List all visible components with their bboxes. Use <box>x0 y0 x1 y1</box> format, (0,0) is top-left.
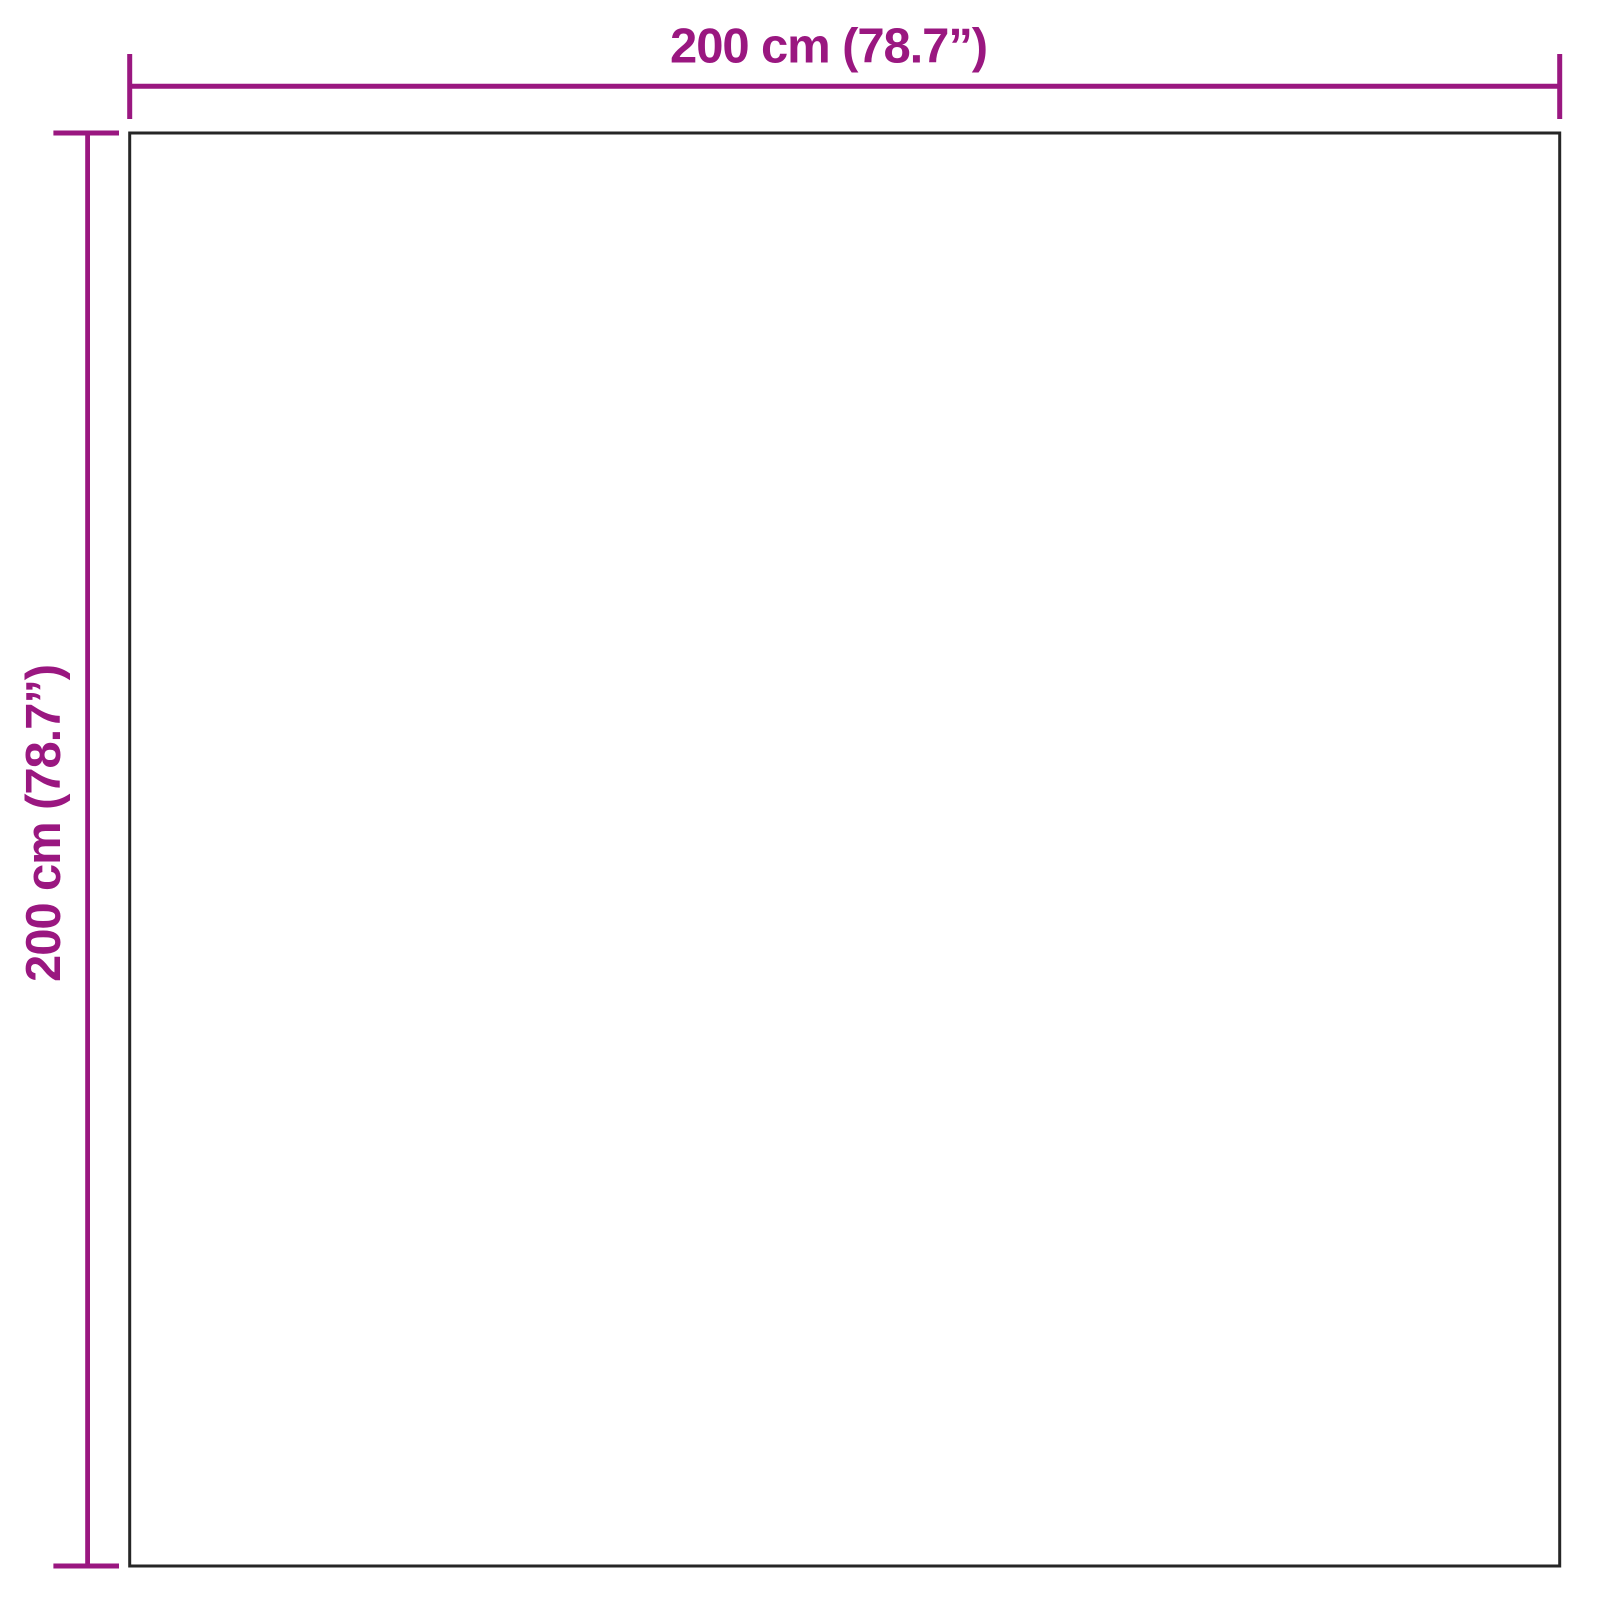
svg-text:200 cm (78.7”): 200 cm (78.7”) <box>17 665 71 982</box>
svg-text:200 cm (78.7”): 200 cm (78.7”) <box>670 20 987 74</box>
